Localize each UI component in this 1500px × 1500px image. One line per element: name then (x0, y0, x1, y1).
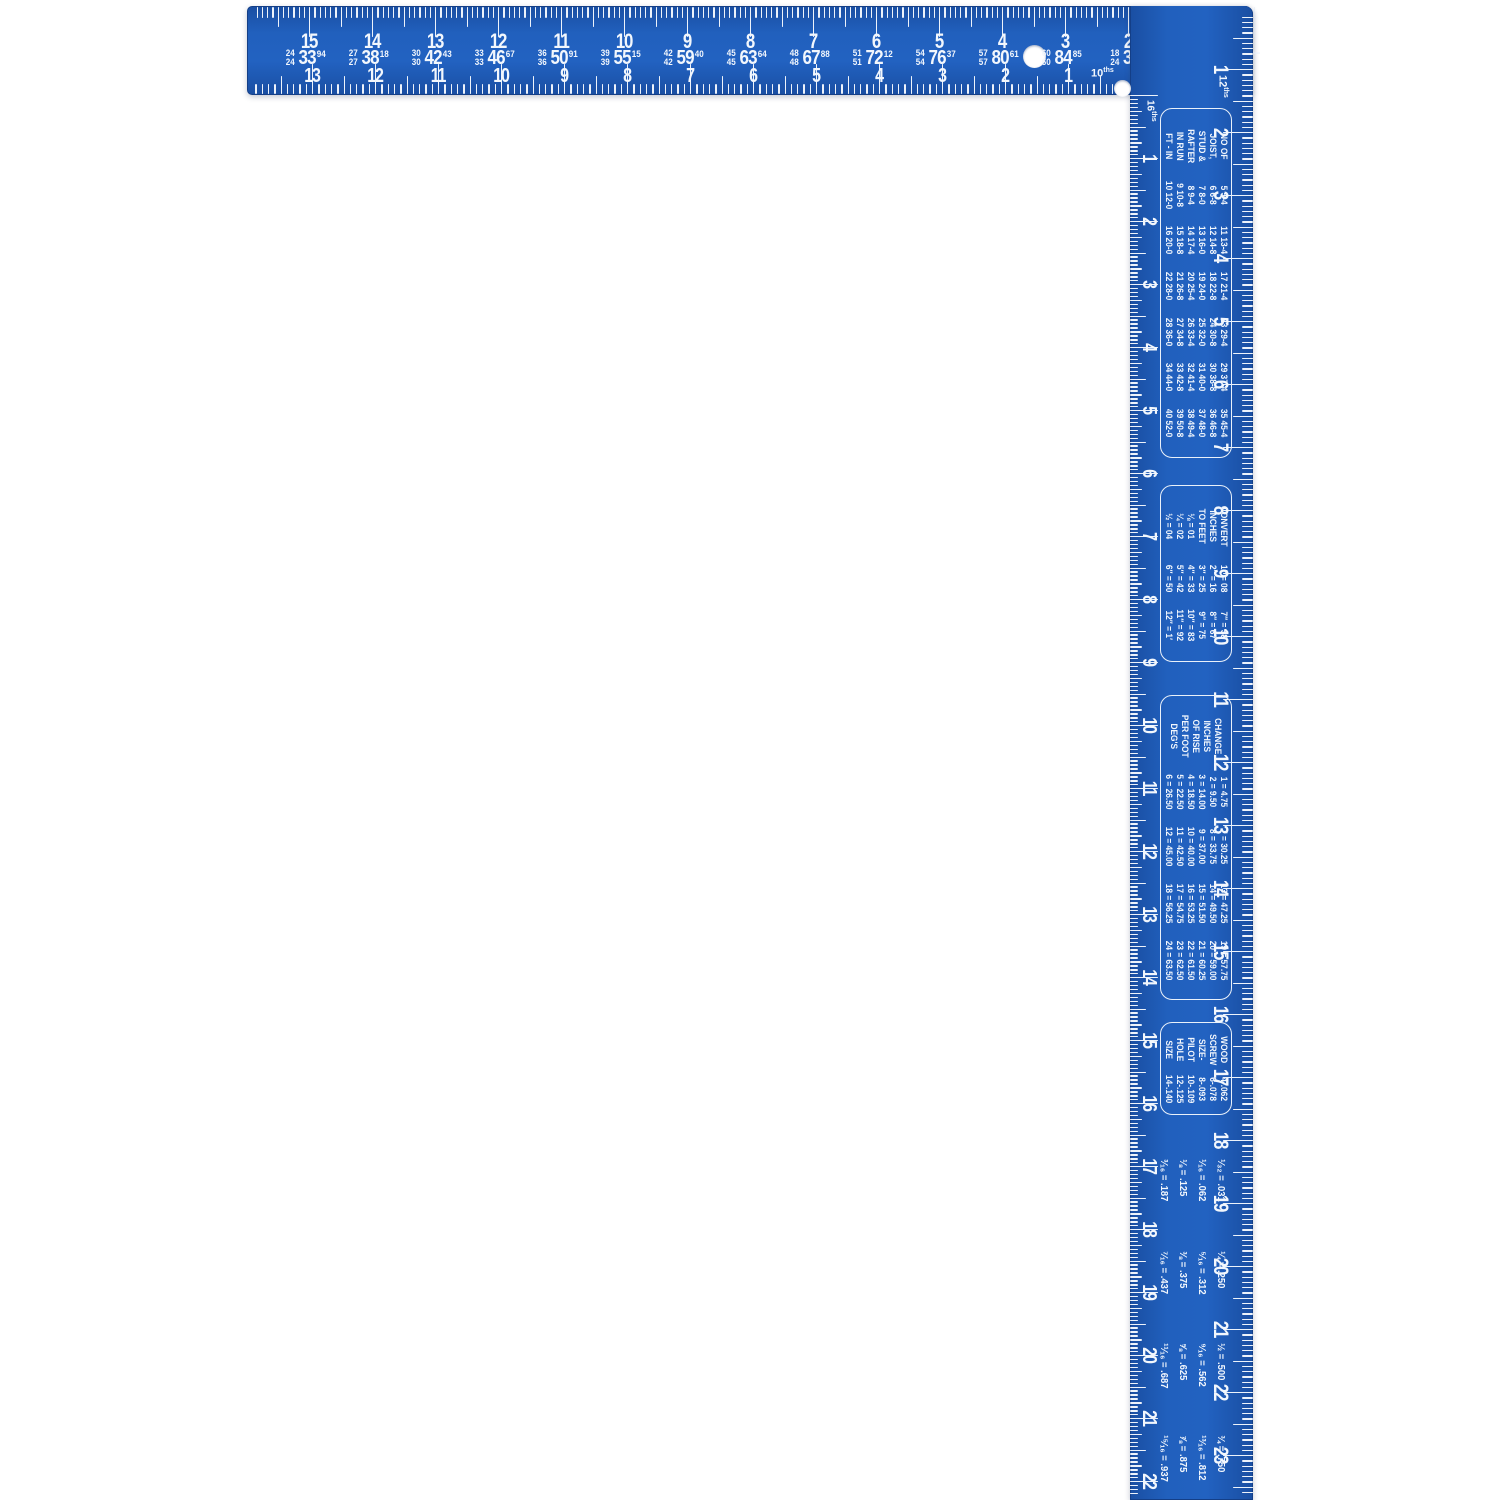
tick-mark (388, 7, 389, 18)
tick-mark (1130, 595, 1138, 596)
brace-value-superscript: 67 (506, 49, 515, 60)
tick-mark (1130, 792, 1138, 793)
tick-mark (1130, 1186, 1138, 1187)
rise-cell: 20 = 59.00 (1207, 941, 1218, 981)
tick-mark (666, 7, 667, 18)
tick-mark (619, 7, 620, 18)
decimal-equivalent-cell: ⅛ = .125 (1175, 1159, 1190, 1218)
decimal-equivalents-group: ¾ = .750¹³⁄₁₆ = .812⅞ = .875¹⁵⁄₁₆ = .937 (1156, 1432, 1228, 1498)
tick-mark (1130, 1048, 1138, 1049)
tick-mark (314, 7, 315, 18)
tick-mark (887, 7, 888, 18)
brace-table-entry: 27273818 (348, 48, 389, 68)
brace-pair-bottom: 24 (1110, 58, 1119, 68)
tick-mark (1242, 589, 1253, 590)
tick-mark (1130, 548, 1138, 549)
tick-mark (1130, 997, 1138, 998)
tick-mark (1130, 721, 1138, 722)
tick-mark (659, 76, 660, 94)
tick-mark (1130, 1158, 1138, 1159)
tick-mark (1130, 1261, 1146, 1262)
tick-mark (476, 84, 477, 94)
tick-mark (608, 84, 609, 94)
tick-mark (1130, 197, 1138, 198)
brace-pair-bottom: 33 (475, 58, 484, 68)
tick-mark (1233, 416, 1253, 417)
tick-mark (1130, 1095, 1138, 1096)
joist-cell: 33 42-8 (1174, 363, 1185, 391)
tick-mark (1242, 683, 1253, 684)
joist-cell: 36 46-8 (1207, 409, 1218, 437)
brace-pair-bottom: 39 (601, 58, 610, 68)
tick-mark (923, 84, 924, 94)
tick-mark (1130, 1461, 1138, 1462)
tick-mark (1130, 902, 1138, 903)
brace-table-entry: 42425940 (663, 48, 704, 68)
tick-mark (1242, 237, 1253, 238)
tick-mark (1242, 521, 1253, 522)
brace-pair-bottom: 54 (916, 58, 925, 68)
tick-mark (1242, 253, 1253, 254)
tick-mark (1130, 741, 1142, 742)
tick-mark (1130, 512, 1138, 513)
tick-mark (656, 7, 657, 27)
tick-mark (1242, 662, 1253, 663)
convert-fraction-cell: ¼ = 02 (1174, 506, 1185, 547)
tick-mark (1130, 949, 1138, 950)
tick-mark (1130, 166, 1138, 167)
tick-mark (1130, 1044, 1138, 1045)
tick-mark (1130, 1493, 1138, 1494)
tick-mark (407, 76, 408, 94)
tick-mark (535, 7, 536, 18)
tick-mark (1242, 830, 1253, 831)
tick-mark (1130, 1079, 1138, 1080)
body-outer-inch-number: 18 (1210, 1127, 1231, 1153)
tick-mark (1130, 453, 1138, 454)
tick-mark (356, 84, 357, 94)
tick-mark (1242, 452, 1253, 453)
tick-mark (1242, 1382, 1253, 1383)
screw-header-column: WOODSCREWSIZE-PILOTHOLESIZE (1164, 1032, 1228, 1067)
tick-mark (961, 84, 962, 94)
brace-pair: 4545 (727, 49, 736, 68)
rise-cell: 5 = 22.50 (1174, 775, 1185, 810)
tick-mark (997, 7, 998, 18)
rise-column: 7 = 30.258 = 33.759 = 37.0010 = 40.0011 … (1164, 824, 1228, 869)
rise-cell: 6 = 26.50 (1163, 775, 1174, 810)
tick-mark (1242, 1366, 1253, 1367)
tick-mark (1242, 1387, 1253, 1388)
tick-mark (1242, 32, 1253, 33)
tick-mark (1130, 217, 1138, 218)
tick-mark (1242, 368, 1253, 369)
tick-mark (944, 7, 945, 18)
tick-mark (1130, 989, 1138, 990)
tick-mark (646, 84, 647, 94)
tick-mark (293, 84, 294, 94)
tick-mark (1242, 893, 1253, 894)
tick-mark (834, 7, 835, 18)
tick-mark (1130, 1485, 1138, 1486)
joist-column: 11 13-412 14-813 16-014 17-415 18-816 20… (1164, 224, 1228, 256)
rise-header-cell: PER FOOT (1180, 715, 1191, 758)
joist-header-cell: NO OF (1218, 129, 1229, 163)
tick-mark (1130, 571, 1138, 572)
tick-mark (1130, 926, 1138, 927)
tick-mark (1130, 1339, 1142, 1340)
tick-mark (1233, 227, 1253, 228)
tick-mark (1242, 174, 1253, 175)
tick-mark (1130, 316, 1146, 317)
tick-mark (1130, 379, 1146, 380)
tick-mark (1130, 772, 1142, 773)
joist-stud-rafter-table: NO OFJOIST,STUD &RAFTERIN RUNFT - IN5 5-… (1160, 108, 1232, 458)
tick-mark (911, 76, 912, 94)
screw-cell: 6-.078 (1207, 1075, 1218, 1103)
tick-mark (1242, 841, 1253, 842)
brace-pair: 6060 (1042, 49, 1051, 68)
tick-mark (608, 7, 609, 18)
tick-mark (1242, 284, 1253, 285)
tick-mark (1242, 878, 1253, 879)
tick-mark (881, 7, 882, 18)
tick-mark (1242, 295, 1253, 296)
tick-mark (1130, 264, 1138, 265)
tick-mark (1242, 941, 1253, 942)
screw-cell: 14-.140 (1163, 1075, 1174, 1103)
joist-cell: 10 12-0 (1163, 180, 1174, 208)
tick-mark (1242, 1187, 1253, 1188)
tick-mark (761, 7, 762, 18)
tick-mark (1130, 1383, 1138, 1384)
tick-mark (1242, 1471, 1253, 1472)
decimal-equivalent-cell: ¹⁵⁄₁₆ = .937 (1156, 1435, 1171, 1494)
tick-mark (1242, 557, 1253, 558)
tick-mark (1242, 216, 1253, 217)
tick-mark (1130, 1316, 1138, 1317)
tick-mark (917, 84, 918, 94)
tick-mark (470, 76, 471, 94)
tick-mark (1130, 1331, 1138, 1332)
tick-mark (1130, 1028, 1138, 1029)
tick-mark (650, 7, 651, 18)
tick-mark (1242, 1308, 1253, 1309)
tick-mark (1242, 526, 1253, 527)
tick-mark (1242, 1156, 1253, 1157)
tick-mark (918, 7, 919, 18)
tick-mark (661, 7, 662, 18)
tick-mark (1242, 1208, 1253, 1209)
tick-mark (1242, 956, 1253, 957)
tick-mark (1242, 64, 1253, 65)
convert-header-cell: CONVERT (1218, 506, 1229, 547)
tick-mark (1130, 127, 1146, 128)
brace-pair-bottom: 24 (286, 58, 295, 68)
tick-mark (1242, 153, 1253, 154)
tick-mark (677, 7, 678, 18)
tick-mark (1130, 256, 1138, 257)
joist-cell: 25 32-0 (1196, 318, 1207, 346)
tick-mark (1242, 1145, 1253, 1146)
tick-mark (1242, 1340, 1253, 1341)
rise-cell: 13 = 47.25 (1218, 884, 1229, 924)
tick-mark (1242, 1445, 1253, 1446)
tick-mark (1242, 704, 1253, 705)
tick-mark (1242, 757, 1253, 758)
tick-mark (413, 84, 414, 94)
tick-mark (709, 84, 710, 94)
tick-mark (1130, 465, 1138, 466)
tick-mark (950, 7, 951, 18)
tick-mark (1130, 564, 1138, 565)
brace-value-superscript: 64 (758, 49, 767, 60)
joist-cell: 34 44-0 (1163, 363, 1174, 391)
tick-mark (1130, 942, 1138, 943)
framing-square-photo: 12ths 10ths e ® 123456789101112131415123… (0, 0, 1500, 1500)
tick-mark (346, 7, 347, 18)
brace-pair: 3333 (475, 49, 484, 68)
tick-mark (1233, 857, 1253, 858)
tick-mark (539, 84, 540, 94)
tick-mark (488, 7, 489, 18)
tick-mark (1130, 1442, 1138, 1443)
tick-mark (797, 84, 798, 94)
tick-mark (776, 7, 777, 18)
tick-mark (1130, 442, 1146, 443)
tick-mark (1242, 326, 1253, 327)
tick-mark (1130, 1438, 1138, 1439)
tick-mark (1130, 890, 1138, 891)
tick-mark (1130, 201, 1138, 202)
tick-mark (545, 7, 546, 18)
rise-cell: 14 = 49.50 (1207, 884, 1218, 924)
tick-mark (1242, 43, 1253, 44)
tick-mark (262, 7, 263, 18)
decimal-equivalent-cell: ⅜ = .375 (1175, 1251, 1190, 1310)
tick-mark (692, 7, 693, 18)
tick-mark (1242, 1334, 1253, 1335)
tick-mark (1242, 494, 1253, 495)
convert-header-column: CONVERTINCHESTO FEET⅛ = 01¼ = 02½ = 04 (1164, 503, 1228, 549)
tick-mark (351, 7, 352, 18)
decimal-equivalents-group: ¼ = .250⁵⁄₁₆ = .312⅜ = .375⁷⁄₁₆ = .437 (1156, 1248, 1228, 1314)
tick-mark (1130, 485, 1138, 486)
tick-mark (1242, 1450, 1253, 1451)
brace-pair-bottom: 48 (790, 58, 799, 68)
tick-mark (1130, 123, 1138, 124)
tick-mark (1130, 268, 1142, 269)
tick-mark (1102, 7, 1103, 18)
tick-mark (1130, 1276, 1142, 1277)
tick-mark (582, 7, 583, 18)
tick-mark (1130, 1154, 1138, 1155)
tick-mark (1130, 1327, 1138, 1328)
tick-mark (1130, 1217, 1138, 1218)
rise-cell: 1 = 4.75 (1218, 775, 1229, 810)
tick-mark (1049, 7, 1050, 18)
tick-mark (482, 84, 483, 94)
body-inner-inch-number: 16 (1139, 1090, 1159, 1116)
tick-mark (1130, 650, 1138, 651)
brace-value: 76 (928, 48, 945, 68)
joist-cell: 30 38-8 (1207, 363, 1218, 391)
tick-mark (1130, 1146, 1138, 1147)
joist-column: 5 5-46 6-87 8-08 9-49 10-810 12-0 (1164, 179, 1228, 211)
tick-mark (974, 76, 975, 94)
tick-mark (1130, 154, 1138, 155)
tick-mark (1242, 1355, 1253, 1356)
tick-mark (1130, 615, 1142, 616)
tick-mark (1130, 784, 1138, 785)
tick-mark (1037, 76, 1038, 94)
tick-mark (1130, 477, 1138, 478)
tick-mark (456, 7, 457, 18)
tick-mark (1130, 985, 1138, 986)
tick-mark (1130, 1233, 1138, 1234)
tick-mark (1130, 552, 1142, 553)
tick-mark (1130, 843, 1138, 844)
tick-mark (1130, 524, 1138, 525)
tick-mark (1130, 686, 1138, 687)
brace-pair: 3939 (601, 49, 610, 68)
tick-mark (1242, 851, 1253, 852)
joist-cell: 6 6-8 (1207, 180, 1218, 208)
tick-mark (829, 7, 830, 18)
brace-value-superscript: 12 (884, 49, 893, 60)
brace-table-entry: 36365091 (537, 48, 578, 68)
joist-cell: 31 40-0 (1196, 363, 1207, 391)
tick-mark (1242, 405, 1253, 406)
tick-mark (1106, 84, 1107, 94)
tick-mark (1242, 1476, 1253, 1477)
tick-mark (1242, 468, 1253, 469)
tick-mark (467, 7, 468, 27)
tick-mark (1242, 1056, 1253, 1057)
tick-mark (526, 84, 527, 94)
tick-mark (1130, 855, 1138, 856)
tick-mark (1242, 1319, 1253, 1320)
tick-mark (1242, 158, 1253, 159)
tick-mark (1242, 80, 1253, 81)
tick-mark (1242, 437, 1253, 438)
tick-mark (304, 7, 305, 18)
tick-mark (1242, 967, 1253, 968)
tick-mark (1242, 547, 1253, 548)
tick-mark (1130, 209, 1138, 210)
brace-table-entry: 51517212 (852, 48, 893, 68)
tick-mark (981, 7, 982, 18)
tick-mark (1242, 599, 1253, 600)
tick-mark (860, 84, 861, 94)
tick-mark (1093, 84, 1094, 94)
tick-mark (1130, 520, 1142, 521)
tick-mark (1130, 296, 1138, 297)
tick-mark (1130, 1198, 1146, 1199)
tick-mark (734, 7, 735, 18)
tick-mark (419, 84, 420, 94)
tick-mark (908, 7, 909, 27)
tick-mark (350, 84, 351, 94)
tick-mark (551, 7, 552, 18)
joist-cell: 13 16-0 (1196, 226, 1207, 254)
tick-mark (1242, 211, 1253, 212)
brace-value-superscript: 40 (695, 49, 704, 60)
tick-mark (1242, 442, 1253, 443)
tick-mark (782, 7, 783, 27)
tick-mark (1130, 449, 1138, 450)
tick-mark (1130, 1422, 1138, 1423)
tick-mark (344, 76, 345, 94)
tick-mark (1130, 847, 1138, 848)
brace-pair: 4848 (790, 49, 799, 68)
tick-mark (1242, 746, 1253, 747)
tick-mark (1130, 1005, 1138, 1006)
joist-cell: 23 29-4 (1218, 318, 1229, 346)
tick-mark (1130, 583, 1142, 584)
tick-mark (1130, 469, 1138, 470)
tick-mark (1242, 1403, 1253, 1404)
brace-value: 55 (613, 48, 630, 68)
tick-mark (1130, 300, 1142, 301)
tick-mark (1242, 1182, 1253, 1183)
tick-mark (1097, 7, 1098, 27)
brace-pair: 1824 (1110, 49, 1119, 68)
tick-mark (1130, 508, 1138, 509)
tick-mark (1242, 200, 1253, 201)
tick-mark (1242, 458, 1253, 459)
tongue-inner-inch-number: 10 (488, 66, 514, 86)
rise-degrees-table: CHANGEINCHESOF RISEPER FOOTDEG'S1 = 4.75… (1160, 695, 1232, 1000)
body-inner-inch-number: 4 (1139, 334, 1159, 360)
tick-mark (1233, 1172, 1253, 1173)
rise-cell: 19 = 57.75 (1218, 941, 1229, 981)
joist-cell: 18 22-8 (1207, 272, 1218, 300)
tick-mark (451, 7, 452, 18)
tick-mark (1130, 532, 1138, 533)
tick-mark (400, 84, 401, 94)
tick-mark (493, 7, 494, 18)
tick-mark (1130, 1245, 1142, 1246)
tick-mark (860, 7, 861, 18)
tick-mark (1130, 260, 1138, 261)
tick-mark (1130, 1335, 1138, 1336)
rise-cell: 11 = 42.50 (1174, 827, 1185, 867)
joist-header-cell: IN RUN (1174, 129, 1185, 163)
tick-mark (1233, 983, 1253, 984)
tick-mark (1130, 359, 1138, 360)
tick-mark (393, 7, 394, 18)
brace-pair: 5454 (916, 49, 925, 68)
body-arm-rotated-content: 12ths 16ths 1234567891011121314151617181… (1130, 6, 1253, 1500)
tick-mark (1130, 1343, 1138, 1344)
tick-mark (1242, 127, 1253, 128)
tick-mark (1233, 668, 1253, 669)
tick-mark (362, 7, 363, 18)
decimal-equivalent-cell: ¹⁄₃₂ = .031 (1213, 1159, 1228, 1218)
tick-mark (1130, 375, 1138, 376)
tick-mark (629, 7, 630, 18)
rise-cell: 7 = 30.25 (1218, 827, 1229, 867)
tick-mark (593, 7, 594, 27)
tick-mark (1130, 119, 1138, 120)
tick-mark (1130, 339, 1138, 340)
tick-mark (1130, 422, 1138, 423)
tick-mark (1242, 710, 1253, 711)
convert-cell: 12″ = 1′ (1163, 609, 1174, 641)
tick-mark (1242, 1177, 1253, 1178)
tongue-inner-inch-number: 11 (425, 66, 451, 86)
